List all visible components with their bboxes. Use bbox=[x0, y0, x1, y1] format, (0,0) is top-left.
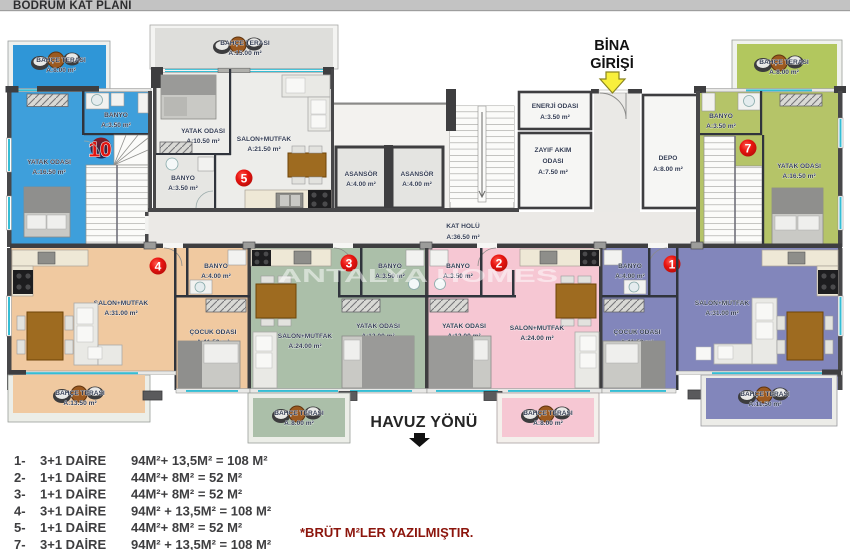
svg-text:A:7.50 m²: A:7.50 m² bbox=[538, 169, 568, 176]
svg-text:4-: 4- bbox=[14, 503, 26, 518]
svg-text:A:36.50 m²: A:36.50 m² bbox=[446, 234, 480, 241]
svg-text:A:16.50 m²: A:16.50 m² bbox=[32, 169, 66, 176]
svg-text:ÇOCUK ODASI: ÇOCUK ODASI bbox=[614, 329, 661, 336]
svg-text:A:24.00 m²: A:24.00 m² bbox=[520, 335, 554, 342]
svg-text:YATAK ODASI: YATAK ODASI bbox=[356, 323, 400, 330]
svg-text:2-: 2- bbox=[14, 470, 26, 485]
svg-text:A:13.50 m²: A:13.50 m² bbox=[63, 400, 97, 407]
svg-text:BAHÇE TERASI: BAHÇE TERASI bbox=[274, 410, 324, 417]
svg-text:94M² + 13,5M² = 108 M²: 94M² + 13,5M² = 108 M² bbox=[131, 537, 272, 550]
svg-text:BANYO: BANYO bbox=[204, 263, 228, 270]
svg-text:A:8.00 m²: A:8.00 m² bbox=[46, 67, 76, 74]
svg-text:A:15.00 m²: A:15.00 m² bbox=[228, 50, 262, 57]
svg-text:1: 1 bbox=[669, 258, 676, 272]
svg-text:A:11.50 m²: A:11.50 m² bbox=[749, 401, 783, 408]
svg-text:BANYO: BANYO bbox=[618, 263, 642, 270]
svg-text:BİNA: BİNA bbox=[594, 37, 630, 54]
svg-text:BODRUM KAT PLANI: BODRUM KAT PLANI bbox=[13, 0, 132, 12]
svg-text:*BRÜT M²LER YAZILMIŞTIR.: *BRÜT M²LER YAZILMIŞTIR. bbox=[300, 525, 473, 540]
svg-text:BAHÇE TERASI: BAHÇE TERASI bbox=[36, 57, 86, 64]
svg-text:BAHÇE TERASI: BAHÇE TERASI bbox=[55, 390, 105, 397]
svg-text:A:21.50 m²: A:21.50 m² bbox=[247, 146, 281, 153]
svg-text:A:4.00 m²: A:4.00 m² bbox=[346, 181, 376, 188]
svg-text:94M² + 13,5M² = 108 M²: 94M² + 13,5M² = 108 M² bbox=[131, 503, 272, 518]
svg-text:5: 5 bbox=[241, 172, 248, 186]
svg-text:A:8.00 m²: A:8.00 m² bbox=[653, 166, 683, 173]
svg-text:A:3.50 m²: A:3.50 m² bbox=[101, 122, 131, 129]
svg-text:44M²+ 8M² = 52 M²: 44M²+ 8M² = 52 M² bbox=[131, 520, 243, 535]
svg-text:7: 7 bbox=[745, 142, 752, 156]
svg-text:HAVUZ YÖNÜ: HAVUZ YÖNÜ bbox=[370, 412, 477, 431]
svg-text:BANYO: BANYO bbox=[104, 112, 128, 119]
svg-text:A:24.00 m²: A:24.00 m² bbox=[288, 343, 322, 350]
svg-text:DEPO: DEPO bbox=[659, 155, 678, 162]
svg-text:SALON+MUTFAK: SALON+MUTFAK bbox=[278, 333, 333, 340]
svg-text:4: 4 bbox=[155, 260, 162, 274]
svg-text:ODASI: ODASI bbox=[543, 158, 564, 165]
svg-text:A:4.00 m²: A:4.00 m² bbox=[201, 273, 231, 280]
svg-text:ÇOCUK ODASI: ÇOCUK ODASI bbox=[190, 329, 237, 336]
svg-text:A:8.00 m²: A:8.00 m² bbox=[769, 69, 799, 76]
svg-text:YATAK ODASI: YATAK ODASI bbox=[777, 163, 821, 170]
svg-text:BAHÇE TERASI: BAHÇE TERASI bbox=[523, 410, 573, 417]
svg-text:ZAYIF AKIM: ZAYIF AKIM bbox=[535, 147, 572, 154]
svg-text:A:4.00 m²: A:4.00 m² bbox=[615, 273, 645, 280]
svg-text:1+1 DAİRE: 1+1 DAİRE bbox=[40, 470, 106, 485]
svg-text:ASANSÖR: ASANSÖR bbox=[401, 169, 434, 178]
svg-text:94M²+ 13,5M² = 108 M²: 94M²+ 13,5M² = 108 M² bbox=[131, 453, 268, 468]
svg-text:YATAK ODASI: YATAK ODASI bbox=[27, 159, 71, 166]
svg-text:A:8.00 m²: A:8.00 m² bbox=[533, 420, 563, 427]
svg-text:A:3.50 m²: A:3.50 m² bbox=[540, 114, 570, 121]
svg-text:3-: 3- bbox=[14, 487, 26, 502]
svg-text:44M²+ 8M² = 52 M²: 44M²+ 8M² = 52 M² bbox=[131, 487, 243, 502]
svg-text:BAHÇE TERASI: BAHÇE TERASI bbox=[220, 40, 270, 47]
svg-text:1+1 DAİRE: 1+1 DAİRE bbox=[40, 487, 106, 502]
svg-text:10: 10 bbox=[88, 139, 111, 162]
svg-text:7-: 7- bbox=[14, 537, 26, 550]
svg-text:YATAK ODASI: YATAK ODASI bbox=[442, 323, 486, 330]
svg-text:1+1 DAİRE: 1+1 DAİRE bbox=[40, 520, 106, 535]
svg-text:BANYO: BANYO bbox=[709, 113, 733, 120]
svg-text:44M²+ 8M² = 52 M²: 44M²+ 8M² = 52 M² bbox=[131, 470, 243, 485]
svg-text:ASANSÖR: ASANSÖR bbox=[345, 169, 378, 178]
svg-text:SALON+MUTFAK: SALON+MUTFAK bbox=[94, 300, 149, 307]
svg-text:3+1 DAİRE: 3+1 DAİRE bbox=[40, 503, 106, 518]
svg-text:SALON+MUTFAK: SALON+MUTFAK bbox=[510, 325, 565, 332]
svg-text:KAT HOLÜ: KAT HOLÜ bbox=[446, 221, 480, 230]
svg-text:1-: 1- bbox=[14, 453, 26, 468]
svg-text:A:31.00 m²: A:31.00 m² bbox=[705, 310, 739, 317]
svg-text:A:8.00 m²: A:8.00 m² bbox=[284, 420, 314, 427]
svg-text:ENERJİ ODASI: ENERJİ ODASI bbox=[532, 102, 579, 110]
svg-text:SALON+MUTFAK: SALON+MUTFAK bbox=[695, 300, 750, 307]
svg-text:3+1 DAİRE: 3+1 DAİRE bbox=[40, 537, 106, 550]
svg-text:GİRİŞİ: GİRİŞİ bbox=[590, 55, 634, 72]
svg-text:BAHÇE TERASI: BAHÇE TERASI bbox=[740, 391, 790, 398]
svg-text:3+1 DAİRE: 3+1 DAİRE bbox=[40, 453, 106, 468]
svg-text:A:4.00 m²: A:4.00 m² bbox=[402, 181, 432, 188]
svg-text:BAHÇE TERASI: BAHÇE TERASI bbox=[759, 59, 809, 66]
svg-text:SALON+MUTFAK: SALON+MUTFAK bbox=[237, 136, 292, 143]
svg-text:ANTALYA HOMES: ANTALYA HOMES bbox=[278, 265, 558, 286]
svg-text:A:16.50 m²: A:16.50 m² bbox=[782, 173, 816, 180]
svg-text:A:3.50 m²: A:3.50 m² bbox=[168, 185, 198, 192]
svg-text:BANYO: BANYO bbox=[171, 175, 195, 182]
svg-text:5-: 5- bbox=[14, 520, 26, 535]
svg-text:A:3.50 m²: A:3.50 m² bbox=[706, 123, 736, 130]
svg-text:YATAK ODASI: YATAK ODASI bbox=[181, 128, 225, 135]
svg-text:A:31.00 m²: A:31.00 m² bbox=[104, 310, 138, 317]
